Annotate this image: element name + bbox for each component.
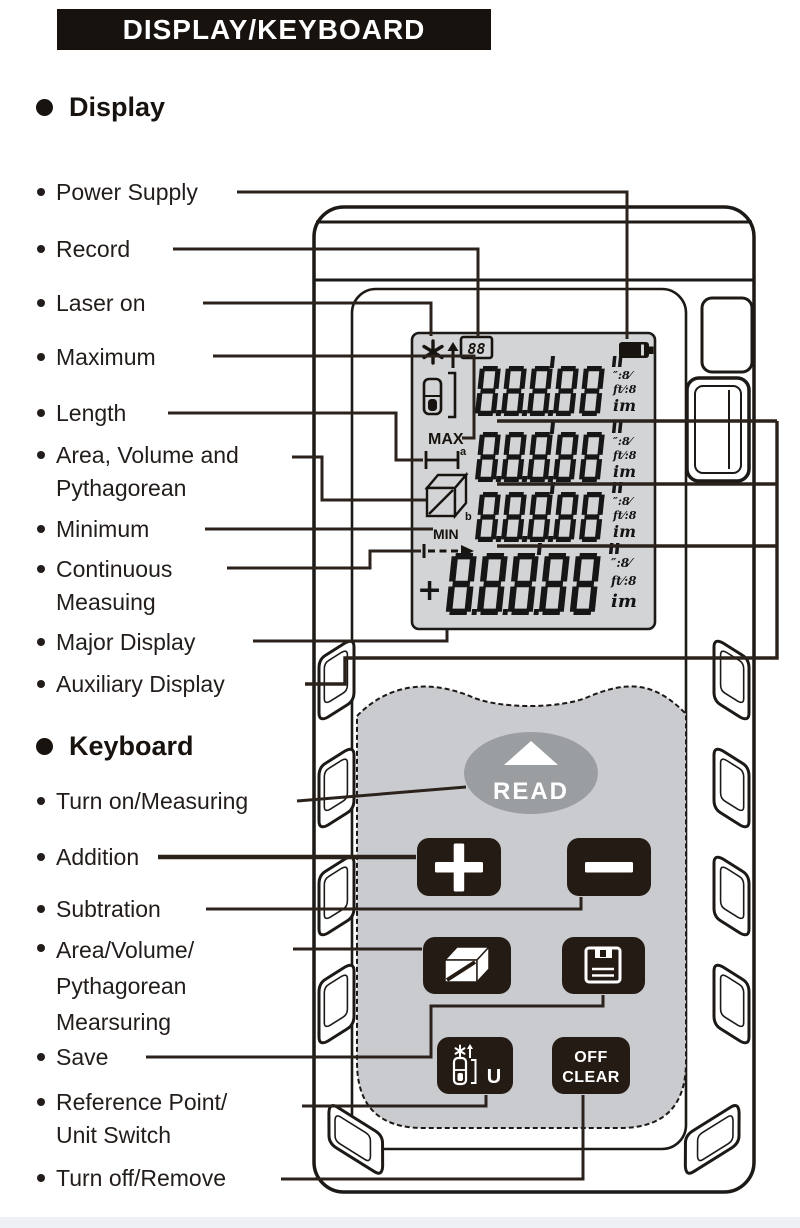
manual-page: DISPLAY/KEYBOARD Display Power Supply Re… — [0, 0, 800, 1228]
reference-unit-button[interactable]: U — [437, 1037, 513, 1094]
footer-strip — [0, 1217, 800, 1228]
lcd-screen: 88 MAX a — [412, 333, 655, 629]
lcd-unit-text: ″:8⁄ — [613, 435, 635, 448]
off-clear-button[interactable]: OFF CLEAR — [552, 1037, 630, 1094]
lcd-unit-text: ft⁄:8 — [612, 383, 637, 396]
lcd-unit-text: ″:8⁄ — [613, 495, 635, 508]
save-button[interactable] — [562, 937, 645, 994]
lcd-unit-text: ft⁄:8 — [610, 574, 637, 588]
side-button[interactable] — [687, 378, 749, 481]
lcd-unit-text: im — [613, 522, 636, 541]
minus-icon — [585, 862, 633, 873]
lcd-digit-row — [445, 543, 619, 615]
minus-button[interactable] — [567, 838, 651, 896]
cube-icon — [445, 947, 489, 982]
plus-button[interactable] — [417, 838, 501, 896]
area-volume-button[interactable] — [423, 937, 511, 994]
max-indicator: MAX — [428, 431, 464, 448]
plus-indicator: + — [417, 573, 442, 608]
svg-text:READ: READ — [493, 778, 569, 805]
svg-text:OFF: OFF — [574, 1049, 608, 1066]
lcd-unit-text: im — [611, 591, 637, 612]
keypad-panel: READ — [357, 686, 686, 1128]
volume-sub-label: b — [465, 511, 472, 523]
lcd-unit-text: ft⁄:8 — [612, 449, 637, 462]
svg-text:U: U — [487, 1066, 501, 1088]
length-sup-label: a — [460, 446, 467, 458]
lcd-unit-text: im — [613, 396, 636, 415]
min-indicator: MIN — [433, 526, 459, 542]
battery-icon — [619, 342, 654, 358]
laser-meter-illustration: 88 MAX a — [0, 0, 800, 1228]
lcd-unit-text: ft⁄:8 — [612, 509, 637, 522]
area-volume-cube-icon — [427, 475, 466, 516]
read-button[interactable]: READ — [464, 732, 598, 814]
svg-text:CLEAR: CLEAR — [562, 1069, 620, 1086]
lcd-unit-text: im — [613, 462, 636, 481]
lcd-unit-text: ″:8⁄ — [613, 369, 635, 382]
